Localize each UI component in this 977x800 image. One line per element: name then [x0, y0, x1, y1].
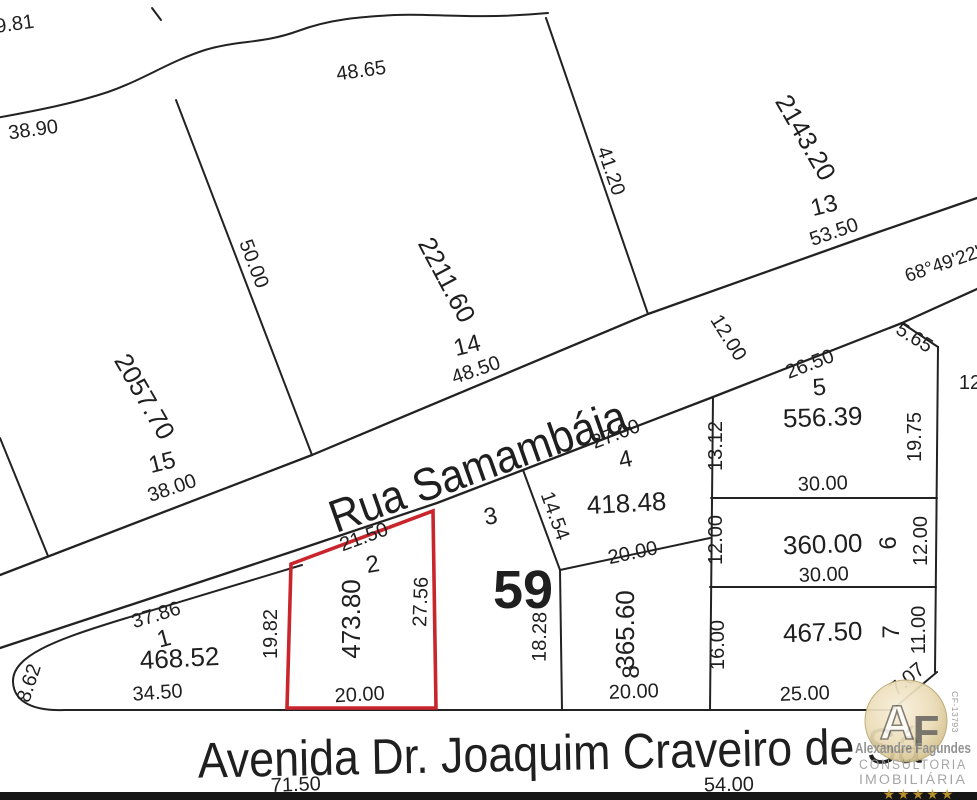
- lot2-right-dim: 27.56: [409, 576, 433, 627]
- lot15-area: 2057.70: [108, 348, 181, 444]
- avenida-dim-right: 54.00: [704, 774, 754, 797]
- lot8-number: 8: [618, 665, 645, 678]
- lot15-left-boundary: [0, 438, 48, 556]
- boundary-dim-19-81: 19.81: [0, 11, 35, 40]
- agency-subtitle-line1: CONSULTORIA: [859, 757, 967, 772]
- boundary-dim-right-partial: 12: [959, 372, 977, 394]
- lot8-left-boundary: [560, 570, 562, 710]
- lot3-side-dim: 14.54: [536, 489, 574, 544]
- lot5-number: 5: [812, 373, 828, 401]
- lot7-right-dim: 11.00: [908, 606, 930, 655]
- agency-subtitle-line2: IMOBILIÁRIA: [859, 772, 967, 787]
- lot2-bottom-dim: 20.00: [334, 683, 385, 708]
- lot7-left-dim: 16.00: [707, 620, 729, 670]
- lot13-number: 13: [808, 189, 840, 222]
- agency-watermark: A F CF-13793 Alexandre Fagundes CONSULTO…: [855, 680, 971, 800]
- agency-registry-label: CF-13793: [950, 691, 960, 733]
- lot6-right-dim: 12.00: [910, 516, 932, 566]
- lot7-bottom-dim: 25.00: [779, 682, 830, 706]
- lot15-number: 15: [146, 446, 178, 479]
- lot5-left-dim: 13.12: [705, 421, 727, 471]
- plat-map-svg: Rua Samambáia Avenida Dr. Joaquim Cravei…: [0, 0, 977, 800]
- lot7-number: 7: [878, 625, 905, 638]
- north-boundary-line: [0, 13, 548, 118]
- lot4-bottom-dim: 20.00: [606, 537, 660, 569]
- lot15-side-dim: 50.00: [234, 237, 272, 292]
- plat-map: Rua Samambáia Avenida Dr. Joaquim Cravei…: [0, 0, 977, 800]
- lots567-right-boundary: [935, 347, 938, 672]
- agency-name-label: Alexandre Fagundes: [855, 740, 971, 757]
- lot5-bottom-dim: 30.00: [797, 472, 848, 496]
- lot5-right-dim: 19.75: [904, 412, 926, 462]
- lot4-number: 4: [616, 445, 635, 474]
- lot13-area: 2143.20: [769, 89, 842, 185]
- lot6-number: 6: [875, 536, 902, 549]
- lot5-area: 556.39: [782, 401, 863, 434]
- lot6-bottom-dim: 30.00: [798, 563, 849, 587]
- lot1-area: 468.52: [139, 641, 220, 675]
- lot14-area: 2211.60: [412, 232, 482, 327]
- lot6-area: 360.00: [782, 528, 863, 561]
- lot6-left-dim: 12.00: [705, 515, 727, 565]
- lot1-side-dim: 19.82: [260, 609, 282, 659]
- lot14-lot13-boundary: [546, 18, 648, 314]
- lot1-bottom-dim: 34.50: [132, 680, 183, 705]
- boundary-dim-38-90: 38.90: [7, 116, 60, 145]
- road-bearing-label: 68°49'22": [902, 241, 977, 287]
- agency-rating-stars: ★★★★★: [883, 786, 956, 800]
- boundary-dim-48-65: 48.65: [335, 57, 388, 86]
- lot5-front-dim: 26.50: [783, 345, 838, 383]
- north-boundary-tick: [152, 8, 161, 20]
- lot7-area: 467.50: [782, 616, 863, 649]
- lot15-lot14-boundary: [176, 100, 312, 455]
- lot2-area: 473.80: [336, 579, 366, 659]
- lot8-bottom-dim: 20.00: [608, 680, 659, 704]
- lot3-number: 3: [482, 502, 500, 531]
- lot4-area: 418.48: [586, 486, 667, 520]
- avenida-dim-left: 71.50: [270, 773, 321, 797]
- block-number: 59: [493, 560, 553, 620]
- lot8-left-dim: 18.28: [529, 612, 552, 662]
- avenue-south-edge: [0, 792, 977, 800]
- lot2-number: 2: [364, 550, 382, 579]
- lot8-area: 365.60: [610, 590, 640, 670]
- road-width-label: 12.00: [705, 311, 750, 365]
